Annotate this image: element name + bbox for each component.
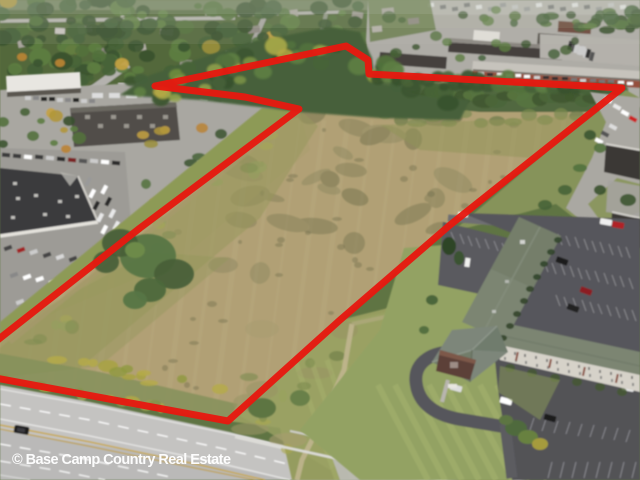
svg-text:© Base Camp Country Real Estat: © Base Camp Country Real Estate — [12, 452, 231, 468]
